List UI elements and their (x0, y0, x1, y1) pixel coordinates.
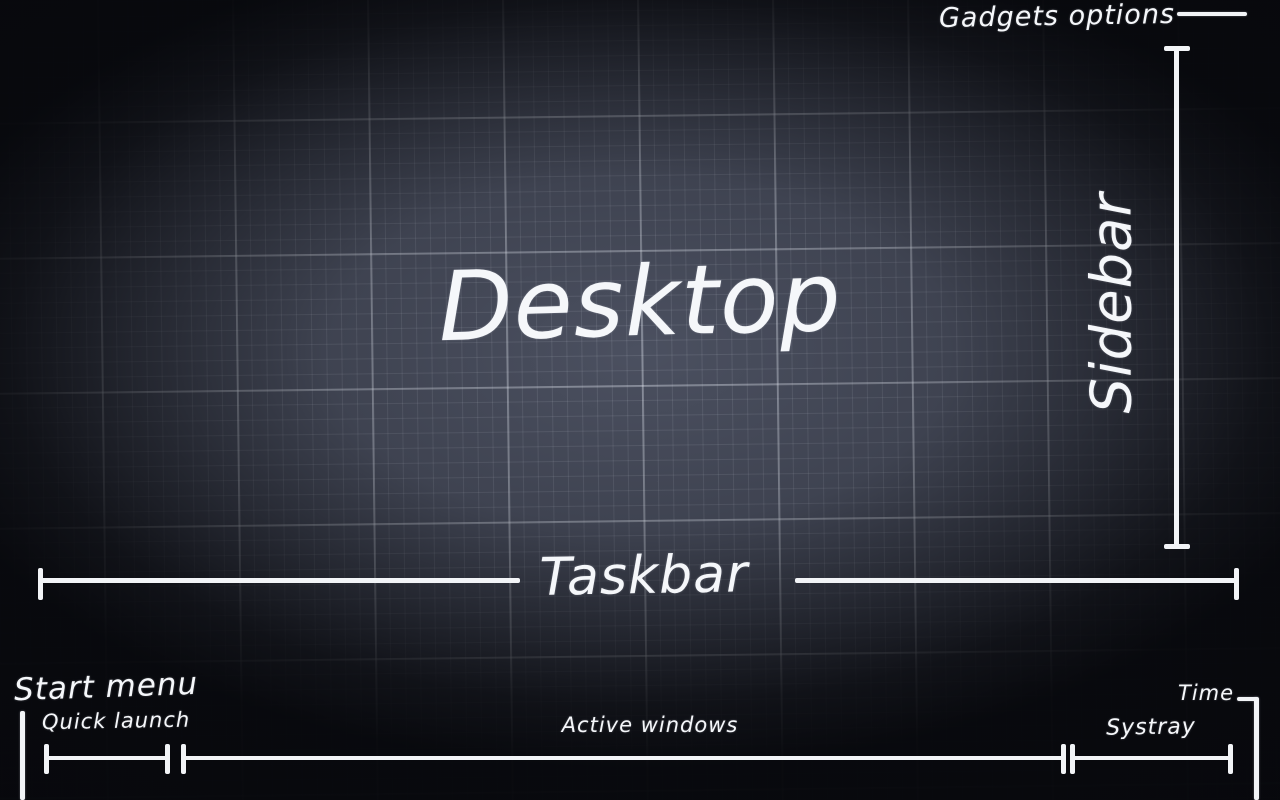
quick-launch-bracket-line (46, 756, 168, 760)
sidebar-dimension-stem (1174, 48, 1179, 547)
taskbar-dimension-cap-left (38, 568, 43, 600)
systray-bracket (1070, 744, 1233, 774)
taskbar-dimension-right-segment (795, 568, 1239, 600)
blueprint-wallpaper: Desktop Gadgets options Sidebar Taskbar … (0, 0, 1280, 800)
sidebar-dimension-cap-bottom (1164, 544, 1190, 549)
active-windows-bracket (181, 744, 1066, 774)
systray-bracket-line (1072, 756, 1231, 760)
taskbar-dimension-left-segment (38, 568, 520, 600)
active-windows-label: Active windows (510, 713, 790, 737)
systray-label: Systray (1068, 714, 1234, 742)
systray-bracket-cap-right (1228, 744, 1233, 774)
start-menu-label: Start menu (13, 666, 198, 708)
time-label: Time (1178, 681, 1232, 705)
sidebar-dimension-line (1164, 46, 1190, 549)
quick-launch-bracket (44, 744, 170, 774)
active-windows-bracket-line (183, 756, 1064, 760)
gadgets-options-label: Gadgets options (930, 0, 1176, 34)
taskbar-dimension-line-left (40, 578, 520, 583)
gadgets-options-pointer-line (1177, 12, 1247, 16)
quick-launch-bracket-cap-right (165, 744, 170, 774)
taskbar-label: Taskbar (517, 544, 770, 608)
taskbar-dimension-line-right (795, 578, 1237, 583)
active-windows-bracket-cap-right (1061, 744, 1066, 774)
sidebar-label: Sidebar (1080, 193, 1145, 414)
taskbar-dimension-cap-right (1234, 568, 1239, 600)
quick-launch-label: Quick launch (42, 708, 174, 734)
start-menu-pointer-line (20, 711, 25, 800)
time-pointer-line-vertical (1254, 697, 1259, 800)
